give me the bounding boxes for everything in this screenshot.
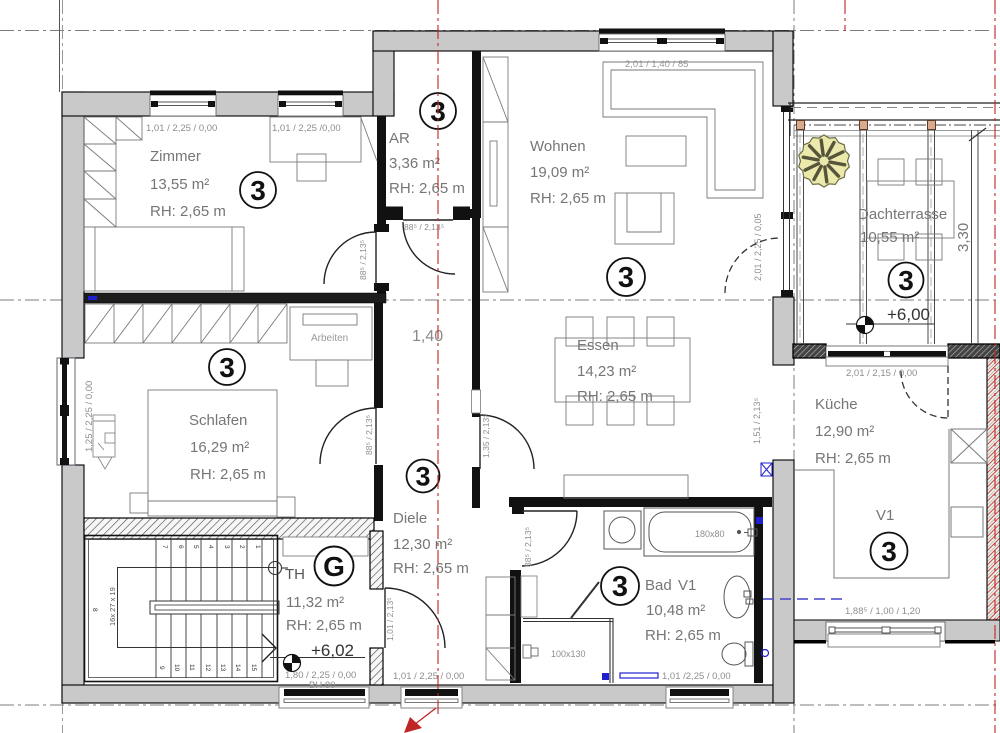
svg-text:TH: TH (285, 566, 305, 583)
svg-text:3: 3 (223, 545, 230, 549)
svg-text:6: 6 (177, 545, 184, 549)
svg-text:15: 15 (250, 664, 257, 672)
svg-text:Bad: Bad (645, 577, 672, 594)
svg-text:G: G (323, 551, 345, 582)
svg-text:3: 3 (881, 536, 897, 567)
svg-text:1,51 / 2,13⁵: 1,51 / 2,13⁵ (752, 397, 762, 444)
svg-text:1,01 /2,25 / 0,00: 1,01 /2,25 / 0,00 (662, 671, 731, 682)
svg-text:10,55 m²: 10,55 m² (860, 229, 919, 246)
svg-text:4: 4 (207, 545, 214, 549)
svg-text:9: 9 (158, 666, 165, 670)
svg-text:11,32 m²: 11,32 m² (286, 594, 344, 611)
svg-text:1,40: 1,40 (412, 328, 443, 345)
svg-text:Essen: Essen (577, 337, 619, 354)
svg-text:88⁵ / 2,13⁵: 88⁵ / 2,13⁵ (358, 240, 368, 280)
svg-text:1,88⁵ / 1,00 / 1,20: 1,88⁵ / 1,00 / 1,20 (845, 606, 920, 617)
svg-text:Zimmer: Zimmer (150, 148, 201, 165)
svg-text:3: 3 (612, 571, 628, 603)
svg-text:2: 2 (238, 545, 245, 549)
svg-text:RH: 2,65 m: RH: 2,65 m (190, 466, 266, 483)
svg-text:BH 80: BH 80 (309, 680, 335, 691)
svg-text:3: 3 (415, 462, 430, 492)
svg-text:Küche: Küche (815, 396, 858, 413)
svg-text:8: 8 (91, 608, 98, 612)
svg-text:12: 12 (204, 664, 211, 672)
svg-text:RH: 2,65 m: RH: 2,65 m (645, 627, 721, 644)
svg-text:V1: V1 (876, 507, 894, 524)
svg-text:88⁵ / 2,13⁵: 88⁵ / 2,13⁵ (523, 527, 533, 567)
svg-text:1,01 / 2,25 / 0,00: 1,01 / 2,25 / 0,00 (146, 123, 217, 134)
svg-text:RH: 2,65 m: RH: 2,65 m (389, 180, 465, 197)
svg-text:13: 13 (219, 664, 226, 672)
svg-text:RH: 2,65 m: RH: 2,65 m (530, 190, 606, 207)
svg-text:1,01 / 2,25 /0,00: 1,01 / 2,25 /0,00 (272, 123, 341, 134)
svg-text:AR: AR (389, 130, 410, 147)
svg-text:2,01 / 2,25 / 0,05: 2,01 / 2,25 / 0,05 (753, 213, 763, 281)
svg-text:Diele: Diele (393, 510, 427, 527)
svg-text:88⁵ / 2,13⁵: 88⁵ / 2,13⁵ (364, 415, 374, 455)
svg-text:Schlafen: Schlafen (189, 412, 247, 429)
svg-text:11: 11 (188, 664, 195, 671)
svg-text:RH: 2,65 m: RH: 2,65 m (150, 203, 226, 220)
svg-text:7: 7 (161, 545, 168, 549)
svg-text:1,01 / 2,13⁵: 1,01 / 2,13⁵ (385, 597, 395, 641)
svg-text:1: 1 (254, 545, 261, 549)
svg-text:RH: 2,65 m: RH: 2,65 m (815, 450, 891, 467)
svg-text:5: 5 (192, 545, 199, 549)
svg-text:14,23 m²: 14,23 m² (577, 363, 636, 380)
svg-text:1,01 / 2,25 / 0,00: 1,01 / 2,25 / 0,00 (393, 671, 464, 682)
svg-text:2,01 / 1,40 / 85: 2,01 / 1,40 / 85 (625, 59, 688, 70)
svg-text:10,48 m²: 10,48 m² (646, 602, 705, 619)
svg-text:19,09 m²: 19,09 m² (530, 164, 589, 181)
svg-text:3: 3 (618, 262, 634, 294)
svg-text:RH: 2,65 m: RH: 2,65 m (577, 388, 653, 405)
svg-text:12,90 m²: 12,90 m² (815, 423, 874, 440)
svg-text:3: 3 (219, 352, 235, 383)
svg-text:16,29 m²: 16,29 m² (190, 439, 249, 456)
svg-text:16x 27 x 19: 16x 27 x 19 (108, 587, 117, 626)
svg-text:+6,00: +6,00 (887, 305, 930, 324)
svg-text:13,55 m²: 13,55 m² (150, 176, 209, 193)
svg-text:Arbeiten: Arbeiten (311, 333, 348, 344)
svg-text:V1: V1 (678, 577, 696, 594)
svg-text:RH: 2,65 m: RH: 2,65 m (286, 617, 362, 634)
svg-text:180x80: 180x80 (695, 529, 725, 539)
svg-text:10: 10 (173, 664, 180, 672)
svg-text:2,01 / 2,15 / 0,00: 2,01 / 2,15 / 0,00 (846, 368, 917, 379)
svg-text:3: 3 (898, 265, 914, 296)
svg-text:3,36 m²: 3,36 m² (389, 155, 440, 172)
svg-text:3: 3 (250, 175, 266, 206)
svg-text:RH: 2,65 m: RH: 2,65 m (393, 560, 469, 577)
svg-text:Dachterrasse: Dachterrasse (858, 206, 947, 223)
svg-text:3,30: 3,30 (955, 223, 972, 252)
svg-text:1,35 / 2,13⁵: 1,35 / 2,13⁵ (481, 414, 491, 458)
svg-text:Wohnen: Wohnen (530, 138, 586, 155)
svg-text:14: 14 (234, 664, 241, 672)
svg-text:12,30 m²: 12,30 m² (393, 536, 452, 553)
svg-text:100x130: 100x130 (551, 649, 586, 659)
